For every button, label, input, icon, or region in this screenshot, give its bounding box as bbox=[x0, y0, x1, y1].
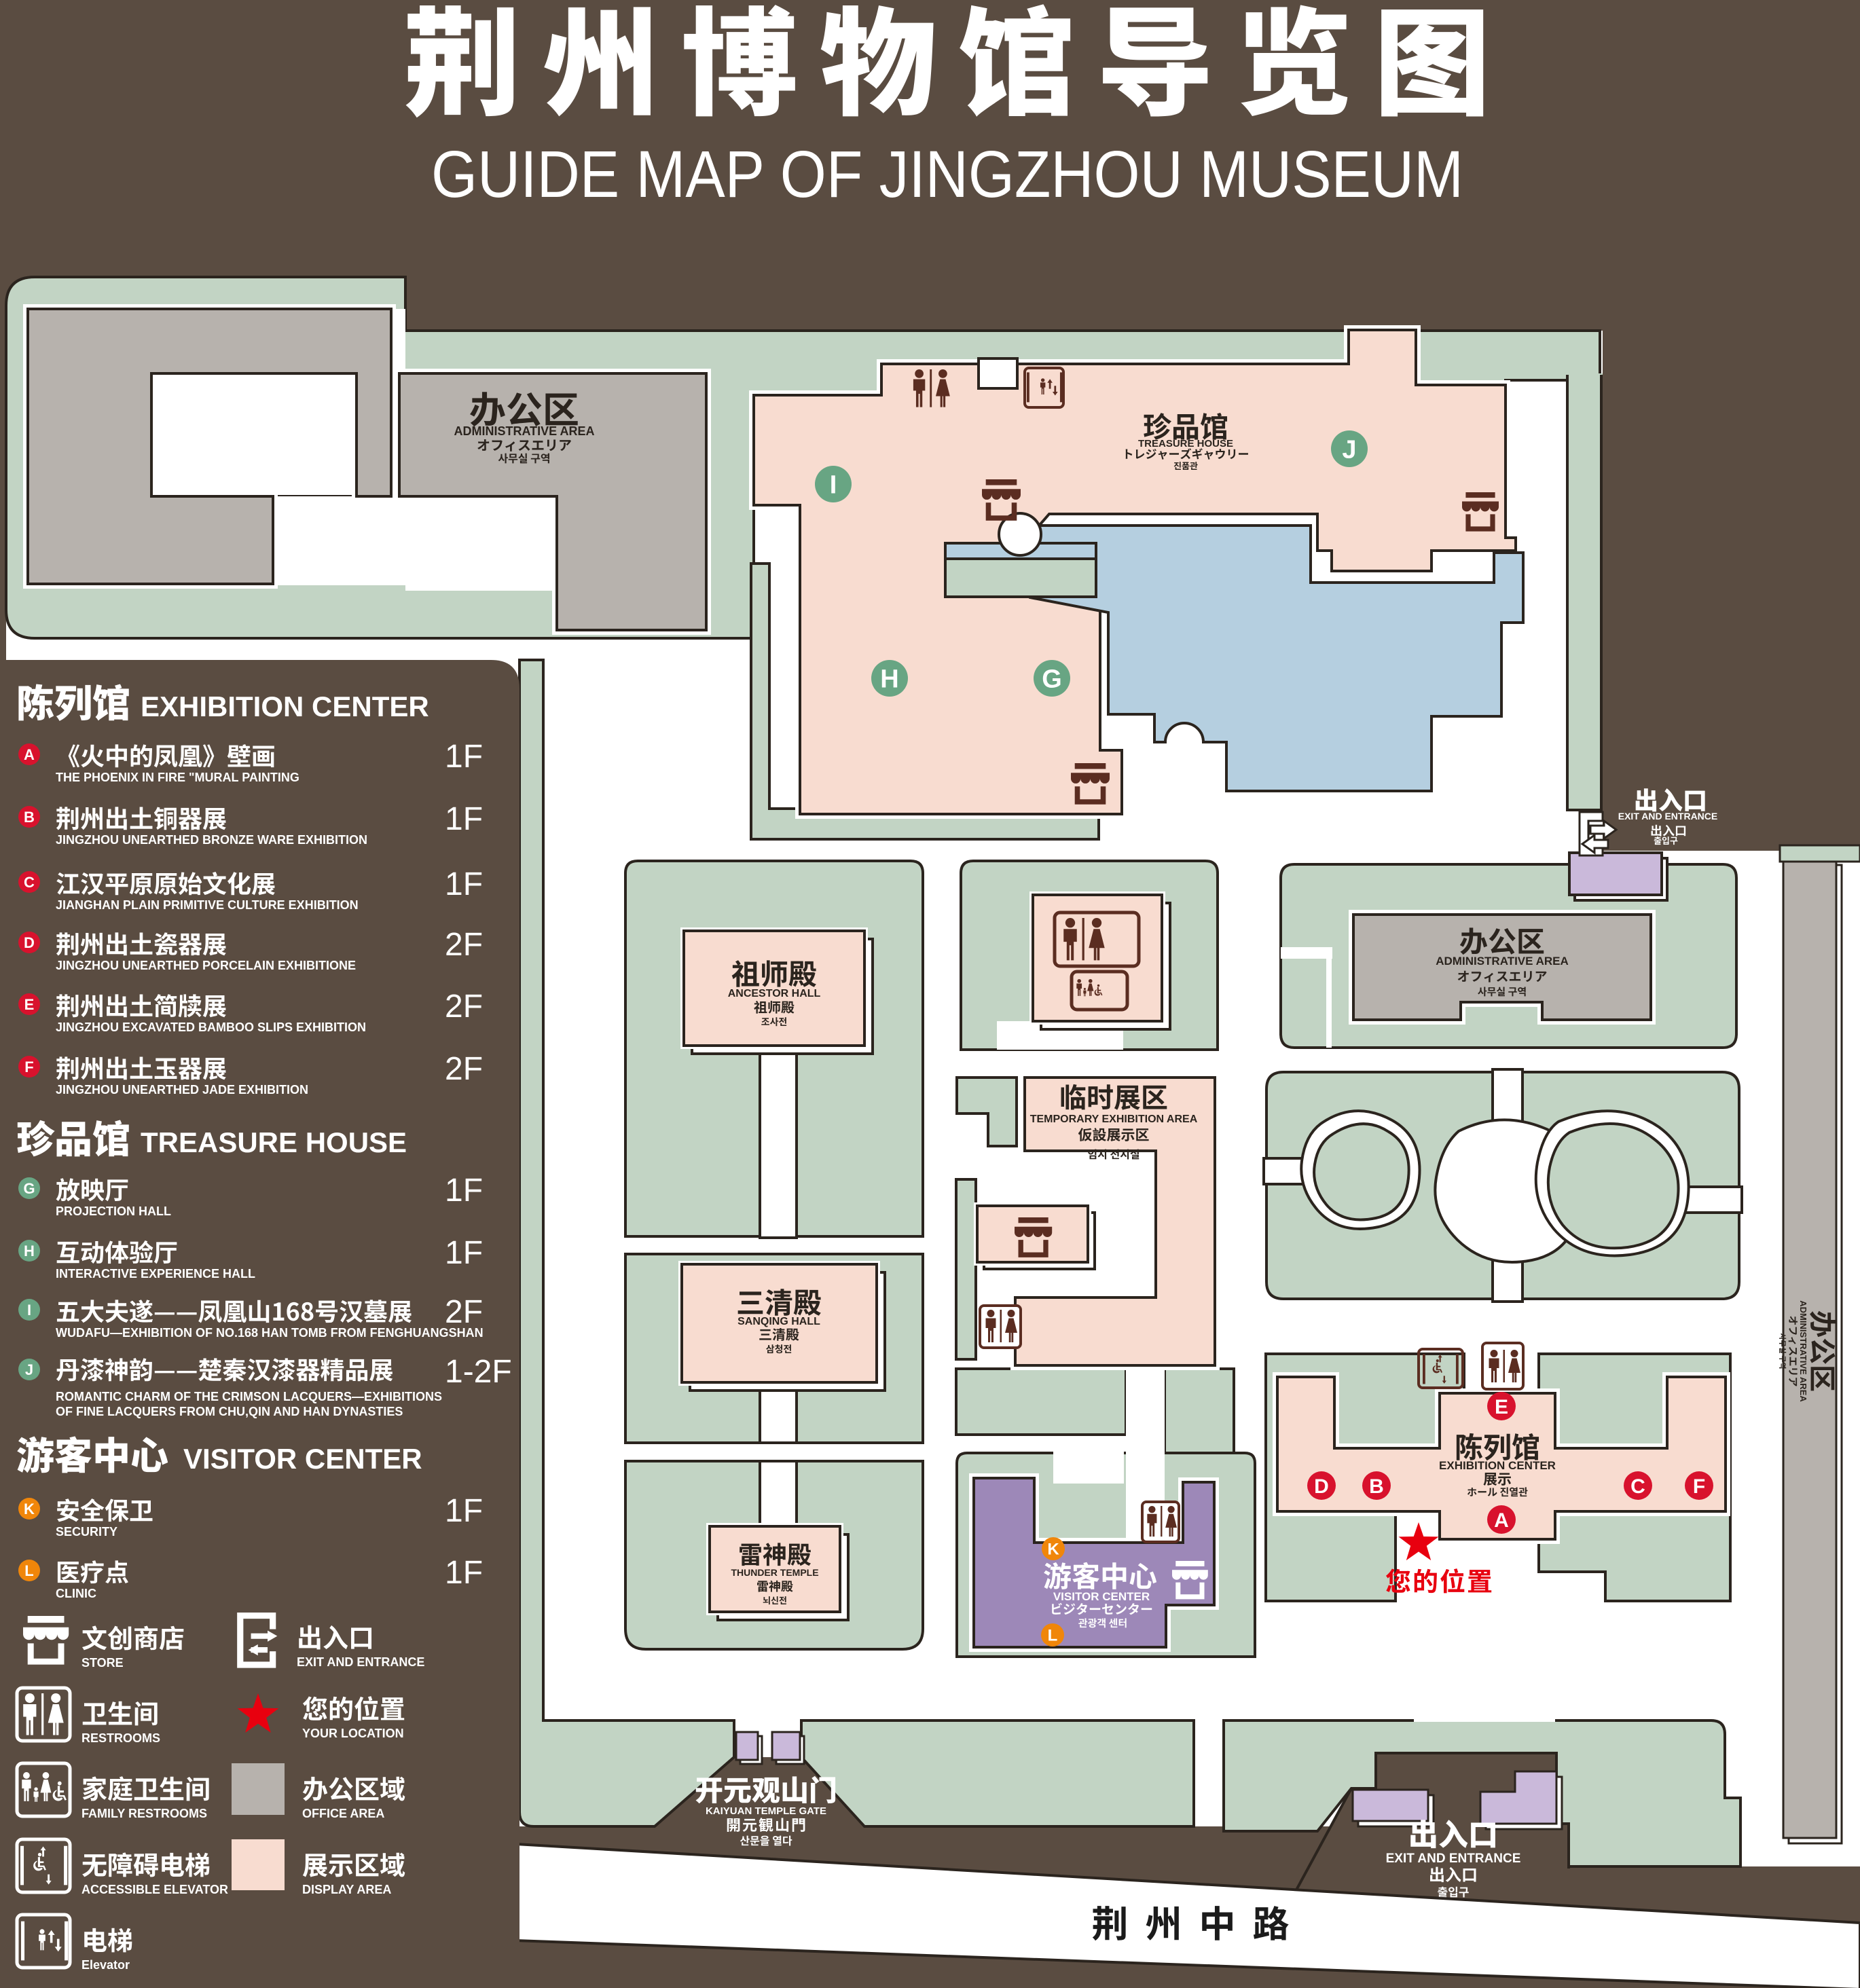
svg-text:EXIT AND ENTRANCE: EXIT AND ENTRANCE bbox=[297, 1655, 424, 1669]
svg-text:SECURITY: SECURITY bbox=[56, 1525, 117, 1539]
svg-text:1F: 1F bbox=[445, 1173, 483, 1209]
svg-text:ADMINISTRATIVE AREA: ADMINISTRATIVE AREA bbox=[454, 424, 595, 438]
svg-text:E: E bbox=[1495, 1396, 1508, 1418]
svg-text:A: A bbox=[24, 746, 35, 763]
svg-text:D: D bbox=[24, 934, 35, 951]
svg-text:CLINIC: CLINIC bbox=[56, 1587, 96, 1600]
svg-text:J: J bbox=[25, 1361, 33, 1378]
svg-text:G: G bbox=[23, 1180, 35, 1197]
svg-text:E: E bbox=[24, 996, 35, 1013]
svg-text:I: I bbox=[27, 1302, 31, 1319]
svg-text:1-2F: 1-2F bbox=[445, 1354, 512, 1390]
svg-text:C: C bbox=[1630, 1475, 1645, 1498]
svg-text:2F: 2F bbox=[445, 989, 483, 1025]
svg-text:ROMANTIC CHARM OF THE CRIMSON: ROMANTIC CHARM OF THE CRIMSON LACQUERS—E… bbox=[56, 1390, 442, 1403]
svg-text:YOUR LOCATION: YOUR LOCATION bbox=[302, 1727, 404, 1740]
svg-text:ADMINISTRATIVE AREA: ADMINISTRATIVE AREA bbox=[1798, 1300, 1808, 1402]
svg-text:JINGZHOU UNEARTHED BRONZE WARE: JINGZHOU UNEARTHED BRONZE WARE EXHIBITIO… bbox=[56, 833, 367, 847]
svg-text:PROJECTION HALL: PROJECTION HALL bbox=[56, 1204, 171, 1218]
svg-text:L: L bbox=[24, 1562, 33, 1579]
svg-text:ANCESTOR HALL: ANCESTOR HALL bbox=[728, 988, 821, 999]
svg-text:TEMPORARY EXHIBITION AREA: TEMPORARY EXHIBITION AREA bbox=[1030, 1113, 1198, 1125]
svg-text:EXHIBITION CENTER: EXHIBITION CENTER bbox=[141, 691, 429, 722]
svg-text:1F: 1F bbox=[445, 801, 483, 837]
svg-text:2F: 2F bbox=[445, 927, 483, 963]
svg-text:1F: 1F bbox=[445, 739, 483, 775]
svg-text:SANQING HALL: SANQING HALL bbox=[737, 1316, 820, 1327]
svg-text:A: A bbox=[1494, 1509, 1509, 1532]
svg-text:B: B bbox=[24, 809, 35, 826]
svg-text:F: F bbox=[1693, 1475, 1705, 1498]
svg-text:C: C bbox=[24, 874, 35, 891]
svg-text:H: H bbox=[880, 665, 898, 694]
svg-text:ADMINISTRATIVE AREA: ADMINISTRATIVE AREA bbox=[1436, 955, 1569, 968]
svg-text:VISITOR CENTER: VISITOR CENTER bbox=[1053, 1590, 1150, 1603]
svg-text:GUIDE MAP OF JINGZHOU MUSEUM: GUIDE MAP OF JINGZHOU MUSEUM bbox=[431, 137, 1463, 211]
svg-text:INTERACTIVE EXPERIENCE HALL: INTERACTIVE EXPERIENCE HALL bbox=[56, 1267, 255, 1281]
svg-text:1F: 1F bbox=[445, 1235, 483, 1271]
svg-text:L: L bbox=[1048, 1627, 1058, 1645]
svg-text:2F: 2F bbox=[445, 1051, 483, 1087]
svg-text:JIANGHAN PLAIN PRIMITIVE CULTU: JIANGHAN PLAIN PRIMITIVE CULTURE EXHIBIT… bbox=[56, 898, 359, 912]
svg-text:WUDAFU—EXHIBITION OF NO.168 HA: WUDAFU—EXHIBITION OF NO.168 HAN TOMB FRO… bbox=[56, 1326, 484, 1340]
svg-text:1F: 1F bbox=[445, 1555, 483, 1591]
svg-text:EXIT AND ENTRANCE: EXIT AND ENTRANCE bbox=[1386, 1852, 1521, 1866]
svg-text:THE PHOENIX IN FIRE "MURAL PAI: THE PHOENIX IN FIRE "MURAL PAINTING bbox=[56, 771, 299, 784]
svg-text:F: F bbox=[24, 1059, 33, 1075]
svg-text:1F: 1F bbox=[445, 866, 483, 902]
svg-text:FAMILY RESTROOMS: FAMILY RESTROOMS bbox=[81, 1807, 207, 1820]
svg-text:TREASURE HOUSE: TREASURE HOUSE bbox=[141, 1126, 407, 1158]
svg-text:JINGZHOU EXCAVATED BAMBOO SLIP: JINGZHOU EXCAVATED BAMBOO SLIPS EXHIBITI… bbox=[56, 1020, 366, 1034]
svg-text:RESTROOMS: RESTROOMS bbox=[81, 1731, 160, 1745]
svg-text:OF FINE LACQUERS FROM CHU,QIN: OF FINE LACQUERS FROM CHU,QIN AND HAN DY… bbox=[56, 1405, 403, 1418]
svg-text:KAIYUAN TEMPLE GATE: KAIYUAN TEMPLE GATE bbox=[706, 1805, 826, 1817]
svg-text:VISITOR CENTER: VISITOR CENTER bbox=[183, 1443, 422, 1475]
svg-text:2F: 2F bbox=[445, 1294, 483, 1330]
svg-text:EXHIBITION CENTER: EXHIBITION CENTER bbox=[1439, 1459, 1556, 1472]
svg-text:ACCESSIBLE ELEVATOR: ACCESSIBLE ELEVATOR bbox=[81, 1883, 228, 1896]
svg-text:DISPLAY AREA: DISPLAY AREA bbox=[302, 1883, 391, 1896]
svg-text:J: J bbox=[1342, 436, 1356, 464]
svg-text:1F: 1F bbox=[445, 1493, 483, 1529]
svg-text:I: I bbox=[830, 471, 837, 500]
svg-text:TREASURE HOUSE: TREASURE HOUSE bbox=[1138, 438, 1233, 449]
svg-text:B: B bbox=[1369, 1475, 1384, 1498]
svg-text:G: G bbox=[1042, 665, 1062, 694]
svg-text:THUNDER TEMPLE: THUNDER TEMPLE bbox=[731, 1567, 818, 1578]
svg-text:JINGZHOU UNEARTHED JADE EXHIBI: JINGZHOU UNEARTHED JADE EXHIBITION bbox=[56, 1083, 308, 1097]
svg-text:JINGZHOU UNEARTHED PORCELAIN E: JINGZHOU UNEARTHED PORCELAIN EXHIBITIONE bbox=[56, 959, 356, 972]
svg-text:H: H bbox=[24, 1242, 35, 1259]
svg-text:OFFICE AREA: OFFICE AREA bbox=[302, 1807, 384, 1820]
svg-text:Elevator: Elevator bbox=[81, 1958, 130, 1972]
svg-text:K: K bbox=[24, 1501, 35, 1517]
svg-text:EXIT AND ENTRANCE: EXIT AND ENTRANCE bbox=[1618, 811, 1718, 822]
svg-text:K: K bbox=[1047, 1541, 1059, 1559]
svg-text:STORE: STORE bbox=[81, 1656, 124, 1670]
svg-text:D: D bbox=[1314, 1475, 1329, 1498]
